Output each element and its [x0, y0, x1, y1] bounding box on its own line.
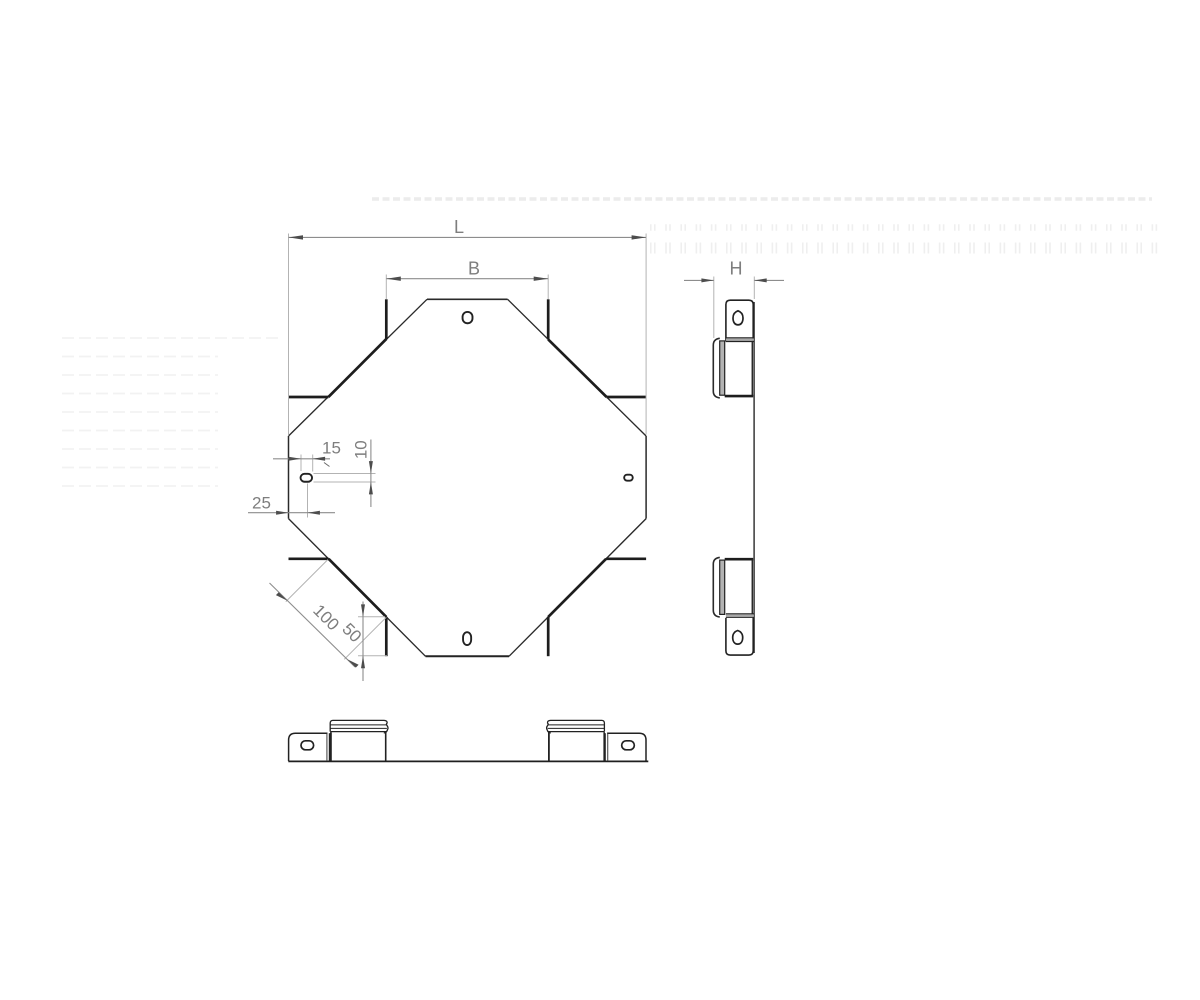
svg-text:25: 25: [252, 494, 271, 513]
svg-text:L: L: [454, 217, 464, 237]
svg-text:H: H: [730, 259, 743, 279]
svg-text:B: B: [468, 259, 480, 279]
svg-text:10: 10: [352, 440, 371, 459]
svg-text:15: 15: [322, 439, 341, 458]
